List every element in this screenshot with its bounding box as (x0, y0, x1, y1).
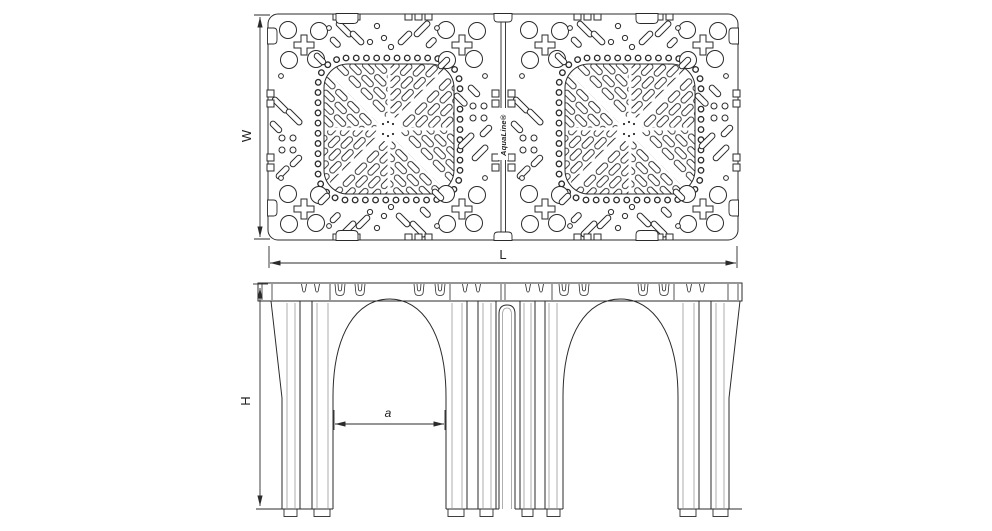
leg-inner-lines (287, 303, 724, 508)
elevation-view (256, 283, 742, 517)
tile-module-right (508, 14, 740, 240)
ground-and-feet (256, 509, 742, 517)
arch-left (333, 299, 446, 509)
dimension-height-label: H (238, 396, 253, 405)
tile-module-left (267, 14, 499, 240)
dimension-length-label: L (499, 247, 506, 262)
outer-leg-chamfers (271, 301, 740, 509)
dimension-width-label: W (239, 129, 254, 142)
center-slot-inner (503, 308, 512, 509)
dimension-height: H (238, 284, 268, 506)
deck-profile (258, 283, 742, 301)
arch-right (563, 299, 678, 509)
arches (333, 299, 678, 509)
plan-view: AquaLine® (267, 14, 740, 241)
legs (271, 301, 740, 509)
dimension-arch-span-label: a (385, 406, 392, 420)
deck-details (262, 284, 738, 300)
technical-drawing: AquaLine® (0, 0, 992, 531)
dimension-length: L (269, 246, 737, 268)
drawing-sheet: AquaLine® (0, 0, 992, 531)
dimension-arch-span: a (334, 406, 445, 430)
dimension-width: W (239, 15, 270, 239)
center-slot (499, 305, 515, 509)
logo-text: AquaLine® (499, 114, 508, 157)
